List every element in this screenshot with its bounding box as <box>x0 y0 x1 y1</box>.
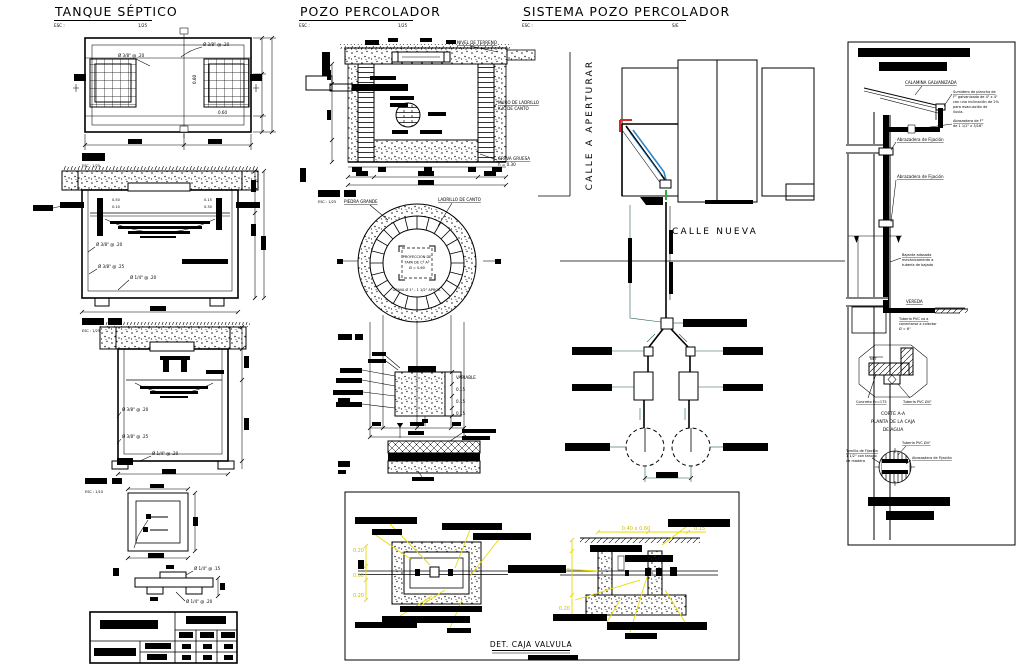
label-bar <box>528 655 578 660</box>
tanque-esc-value: 1/25 <box>138 23 148 28</box>
label-bar <box>221 632 235 638</box>
tanque-plan-view: Ø 3/8" @ .20 Ø 3/8" @ .20 0.60 0.60 ESC … <box>73 28 276 168</box>
caja-dim: 0.60 <box>353 573 364 579</box>
rebar-callout: Ø 3/8" @ .25 <box>98 264 125 269</box>
title-tanque-septico: TANQUE SÉPTICO ESC : 1/25 <box>54 4 178 28</box>
npt-label: NPT <box>870 357 878 361</box>
caja-valvula-panel: 0.20 0.60 0.20 0.40 x 0.60 0.15 0.40 0.2… <box>345 492 739 660</box>
pvc-note: Tubería PVC va a <box>898 317 928 321</box>
label-bar <box>868 497 950 506</box>
label-bar <box>147 654 167 660</box>
dim-label: 0.15 <box>456 399 466 404</box>
pozo-section: NIVEL DE TERRENO MURO DE LADRILLO K.K. D… <box>300 38 539 204</box>
table-cell-bar <box>182 644 191 649</box>
canal-note: Abrazadera de F° <box>953 119 984 123</box>
label-bar <box>683 319 747 327</box>
label-bar <box>408 431 424 435</box>
rebar-callout: Ø 1/4" @ .15 <box>194 566 221 571</box>
label-bar <box>484 171 496 176</box>
pvc-note: conectarse a colector <box>899 322 937 326</box>
sistema-site-plan: CALLE A APERTURAR CALLE NUEVA <box>538 52 814 322</box>
label-bar <box>100 620 158 629</box>
valve-box <box>686 347 695 356</box>
table-cell-bar <box>203 655 212 660</box>
label-bar <box>162 469 176 474</box>
dim-label: 0.60 <box>218 110 228 115</box>
nivel-terreno-label: NIVEL DE TERRENO <box>457 40 497 45</box>
label-bar <box>145 643 171 649</box>
label-bar <box>879 62 947 71</box>
sumidero-note: F° galvanizado de 4" x 4" <box>953 95 998 99</box>
sistema-title: SISTEMA POZO PERCOLADOR <box>523 4 730 19</box>
concreto-label: Concreto f'c=175 <box>856 400 887 404</box>
muro-label-2: K.K. DE CANTO <box>498 106 529 111</box>
tanque-esc-label: ESC : <box>54 23 65 28</box>
tank-box <box>679 372 698 400</box>
rebar-callout: Ø 3/8" @ .20 <box>96 242 123 247</box>
label-bar <box>220 583 225 590</box>
rebar-callout: Ø 3/8" @ .20 <box>203 42 230 47</box>
calle-aperturar-label: CALLE A APERTURAR <box>585 60 595 191</box>
table-cell-bar <box>224 655 233 660</box>
label-bar <box>182 259 228 264</box>
label-bar <box>372 529 402 535</box>
scale-note: ESC : 1/25 <box>82 329 100 333</box>
table-cell-bar <box>182 655 191 660</box>
corte-title: DE AGUA <box>883 427 905 433</box>
label-bar <box>338 398 350 404</box>
label-bar <box>251 224 256 236</box>
label-bar <box>607 622 707 630</box>
label-bar <box>85 478 107 484</box>
bajante-note: Bajante adosada <box>902 253 931 257</box>
dim-label: 0.50 <box>112 198 120 202</box>
label-bar <box>179 632 193 638</box>
rebar-callout: Ø 1/4" @ .20 <box>152 451 179 456</box>
tanque-title: TANQUE SÉPTICO <box>54 4 178 19</box>
label-bar <box>206 370 224 374</box>
sistema-esc-label: ESC : <box>522 23 533 28</box>
label-bar <box>572 384 612 391</box>
tapa-section: Ø 1/4" @ .15 Ø 1/4" @ .20 <box>113 565 225 604</box>
muro-label-1: MURO DE LADRILLO <box>498 100 539 105</box>
vereda-label: VEREDA <box>906 299 923 304</box>
tapa-plan: ESC : 1/10 <box>85 478 198 560</box>
sumidero-note: Sumidero de plancha de <box>953 90 996 94</box>
label-bar <box>412 477 434 481</box>
label-bar <box>128 139 142 144</box>
label-bar <box>336 378 362 383</box>
cad-drawing: TANQUE SÉPTICO ESC : 1/25 POZO PERCOLADO… <box>0 0 1027 670</box>
blue-pipe <box>633 130 666 180</box>
dim-label: 0.60 <box>192 74 197 84</box>
label-bar <box>355 622 417 628</box>
label-bar <box>355 334 363 340</box>
label-bar <box>410 422 424 426</box>
plan-center-label: TAPA DE Cº Aº <box>404 261 430 265</box>
dim-label: VARIABLE <box>456 375 476 380</box>
sistema-esc-value: S/E <box>672 23 679 28</box>
table-cell-bar <box>203 644 212 649</box>
label-bar <box>150 597 158 601</box>
plan-center-label: Ø = 0.60 <box>409 265 425 270</box>
pozo-esc-label: ESC : <box>299 23 310 28</box>
dim-label: 0.30 <box>204 205 212 209</box>
scale-note: ESC : 1/25 <box>318 200 336 204</box>
bajante-note: tubería de bajada <box>902 263 933 267</box>
tanque-long-section: 0.50 0.10 0.15 0.30 Ø 3/8" @ .20 Ø 3/8" … <box>33 166 266 333</box>
corte-title: CORTE A-A <box>881 411 906 417</box>
label-bar <box>208 139 222 144</box>
dim-label: 0.15 <box>456 411 466 416</box>
pipe-bar <box>352 84 408 91</box>
label-bar <box>355 517 417 524</box>
dim-label: 0.10 <box>112 205 120 209</box>
rebar-callout: Ø 3/8" @ .25 <box>122 434 149 439</box>
label-bar <box>669 230 673 254</box>
label-bar <box>94 648 136 656</box>
caja-title: DET. CAJA VALVULA <box>490 640 573 649</box>
pozo-esc-value: 1/25 <box>398 23 408 28</box>
label-bar <box>200 632 214 638</box>
label-bar <box>572 347 612 355</box>
caja-dim: 0.20 <box>353 593 364 599</box>
rebar-callout: Ø 1/4" @ .20 <box>130 275 157 280</box>
grava-label-1: GRAVA GRUESA <box>498 156 530 161</box>
label-bar <box>244 356 249 368</box>
label-bar <box>150 484 164 488</box>
label-bar <box>368 359 386 363</box>
valve-box <box>644 347 653 356</box>
rebar-callout: Ø 3/8" @ .20 <box>122 407 149 412</box>
label-bar <box>300 168 306 182</box>
dim-label: 0.15 <box>456 387 466 392</box>
label-bar <box>446 40 456 44</box>
label-bar <box>565 443 610 451</box>
label-bar <box>723 443 768 451</box>
abrazadera-label: Abrazadera de Fijación <box>897 174 944 179</box>
rebar-callout: Ø 3/8" @ .20 <box>118 53 145 58</box>
label-bar <box>370 76 396 80</box>
label-bar <box>553 614 607 621</box>
label-bar <box>418 171 434 176</box>
label-bar <box>462 429 496 433</box>
corte-title: PLANTA DE LA CAJA <box>871 419 916 425</box>
label-bar <box>388 38 398 42</box>
label-bar <box>452 422 461 426</box>
label-bar <box>462 436 490 440</box>
caja-dim: 0.40 x 0.60 <box>622 526 650 532</box>
label-bar <box>886 511 934 520</box>
label-bar <box>372 422 381 426</box>
label-bar <box>858 48 970 57</box>
label-bar <box>340 368 362 373</box>
label-bar <box>390 96 414 100</box>
sistema-network <box>560 202 845 482</box>
label-bar <box>392 130 408 134</box>
label-bar <box>148 553 164 558</box>
label-bar <box>193 517 198 526</box>
label-bar <box>113 568 119 576</box>
sumidero-note: para evacuación de <box>953 105 987 109</box>
label-bar <box>356 171 368 176</box>
plan-center-note: GRAVA Ø 1" - 1 1/2" APROX. <box>393 287 442 292</box>
calle-nueva-label: CALLE NUEVA <box>672 227 758 237</box>
rebar-callout: Ø 1/4" @ .20 <box>186 599 213 604</box>
label-bar <box>723 384 763 391</box>
label-bar <box>327 110 331 120</box>
calamina-label: CALAMINA GALVANIZADA <box>905 80 957 85</box>
sumidero-note: lluvia. <box>953 110 963 114</box>
label-bar <box>418 180 434 185</box>
canal-note: de 1 1/2" x 3/16" <box>953 124 983 128</box>
sumidero-note: con una inclinación de 2% <box>953 100 1000 104</box>
tuberia-label: Tubería PVC Ø4" <box>902 399 932 404</box>
dim-label: 0.15 <box>204 198 212 202</box>
caja-dim: 0.20 <box>353 548 364 554</box>
label-bar <box>244 418 249 430</box>
title-sistema: SISTEMA POZO PERCOLADOR ESC : S/E <box>522 4 730 28</box>
tornillo-note: Tornillo de Fijación <box>845 449 878 453</box>
label-bar <box>400 606 482 612</box>
downpipe <box>883 115 889 300</box>
label-bar <box>333 390 363 395</box>
outlet-baffle <box>216 198 222 230</box>
grava-label-2: h = 0.30 <box>498 162 516 167</box>
label-bar <box>420 130 442 134</box>
pozo-wall-detail: VARIABLE 0.15 0.15 0.15 <box>333 352 476 426</box>
junction-box <box>661 318 673 329</box>
table-cell-bar <box>224 644 233 649</box>
tornillo-note: de madera <box>846 459 865 463</box>
tank-box <box>634 372 653 400</box>
dimensions-table <box>90 612 237 663</box>
label-bar <box>150 306 166 311</box>
caja-dim: 0.20 <box>559 606 570 612</box>
scale-note: ESC : 1/10 <box>85 490 103 494</box>
ladrillo-label: LADRILLO DE CANTO <box>438 197 481 202</box>
label-bar <box>628 238 632 283</box>
label-bar <box>338 461 350 467</box>
label-bar <box>508 565 566 573</box>
label-bar <box>668 519 730 527</box>
pvc-note: Ø = 6" <box>899 326 911 331</box>
label-bar <box>365 40 379 45</box>
abrazadera-label: Abrazadera de Fijación <box>897 137 944 142</box>
piedra-label: PIEDRA GRANDE <box>344 199 378 204</box>
pipe-clamp <box>879 148 893 155</box>
cad-sheet: TANQUE SÉPTICO ESC : 1/25 POZO PERCOLADO… <box>0 0 1027 670</box>
inlet-tee <box>74 74 86 81</box>
inlet-pipe <box>60 202 84 208</box>
label-bar <box>261 236 266 250</box>
label-bar <box>656 472 678 478</box>
label-bar <box>112 478 122 484</box>
bajante-panel: CALAMINA GALVANIZADA Sumidero de plancha… <box>845 42 1015 545</box>
outlet-tee <box>250 74 262 81</box>
label-bar <box>82 153 105 161</box>
label-bar <box>669 262 673 294</box>
pipe-stub <box>117 458 133 465</box>
plan-center-label: PROYECCION DE <box>403 255 432 259</box>
label-bar <box>344 190 356 197</box>
inlet-baffle <box>97 198 103 236</box>
label-bar <box>723 347 763 355</box>
label-bar <box>166 565 174 569</box>
tornillo-note: 1 1/2" con tarugo <box>846 454 877 458</box>
pozo-title: POZO PERCOLADOR <box>300 4 441 19</box>
bajante-note: mecánicamente a <box>902 258 933 262</box>
label-bar <box>251 180 256 192</box>
outlet-pipe <box>236 202 260 208</box>
label-bar <box>428 112 446 116</box>
label-bar <box>382 616 470 623</box>
label-bar <box>338 470 346 474</box>
label-bar <box>625 633 657 639</box>
label-bar <box>473 533 531 540</box>
tanque-cross-section: Ø 3/8" @ .20 Ø 3/8" @ .25 Ø 1/4" @ .20 <box>100 322 250 476</box>
street-inlet <box>640 197 663 205</box>
label-bar <box>442 523 502 530</box>
title-pozo-percolador: POZO PERCOLADOR ESC : 1/25 <box>299 4 441 28</box>
label-bar <box>447 628 471 633</box>
label-bar <box>318 190 340 197</box>
label-bar <box>372 352 386 356</box>
label-bar <box>186 616 226 624</box>
label-bar <box>408 366 436 372</box>
label-bar <box>420 38 432 42</box>
circle-tuberia-label: Tubería PVC Ø4" <box>901 440 931 445</box>
circle-abrazadera-label: Abrazadera de Fijación <box>912 456 952 460</box>
label-bar <box>327 70 331 80</box>
label-bar <box>33 205 53 211</box>
label-bar <box>338 334 352 340</box>
